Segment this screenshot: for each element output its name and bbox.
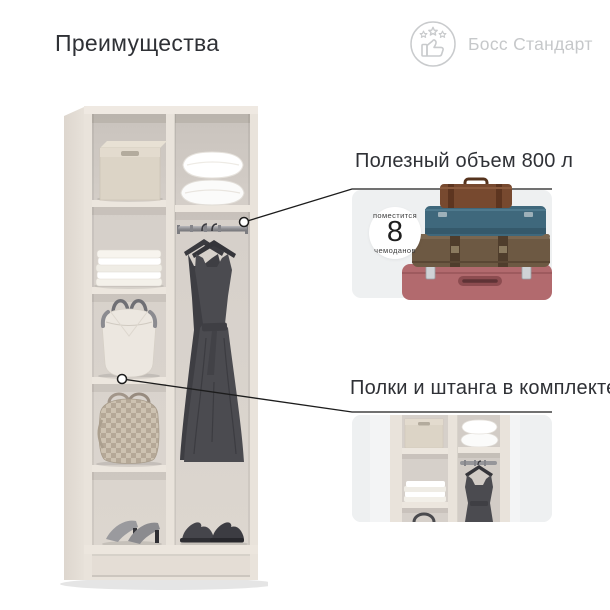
suitcase-pink bbox=[402, 264, 552, 300]
shelf-right bbox=[175, 205, 250, 220]
callout-2-title: Полки и штанга в комплекте bbox=[350, 377, 610, 400]
suitcase-stack bbox=[400, 176, 552, 298]
capacity-badge: поместится 8 чемоданов bbox=[369, 207, 421, 259]
white-handbag bbox=[98, 301, 160, 379]
badge-number: 8 bbox=[387, 219, 403, 247]
folded-linens bbox=[94, 250, 164, 289]
closeup-linens bbox=[404, 481, 446, 502]
page-title: Преимущества bbox=[55, 30, 219, 57]
callout-1-card: поместится 8 чемоданов bbox=[352, 190, 552, 298]
storage-box bbox=[97, 141, 167, 202]
brand-label: Босс Стандарт bbox=[468, 34, 593, 55]
suitcase-brown bbox=[440, 179, 512, 208]
wardrobe-plinth bbox=[84, 545, 258, 580]
callout-1-title: Полезный объем 800 л bbox=[355, 150, 573, 173]
wardrobe-render bbox=[56, 98, 268, 598]
closeup-box bbox=[405, 419, 443, 448]
thumbs-up-stars-icon bbox=[409, 20, 457, 68]
callout-2-card bbox=[352, 415, 552, 522]
badge-bottom-label: чемоданов bbox=[374, 247, 416, 255]
wardrobe-interior-closeup bbox=[352, 415, 552, 522]
checkered-handbag bbox=[96, 394, 162, 467]
brand-block: Босс Стандарт bbox=[409, 20, 593, 68]
